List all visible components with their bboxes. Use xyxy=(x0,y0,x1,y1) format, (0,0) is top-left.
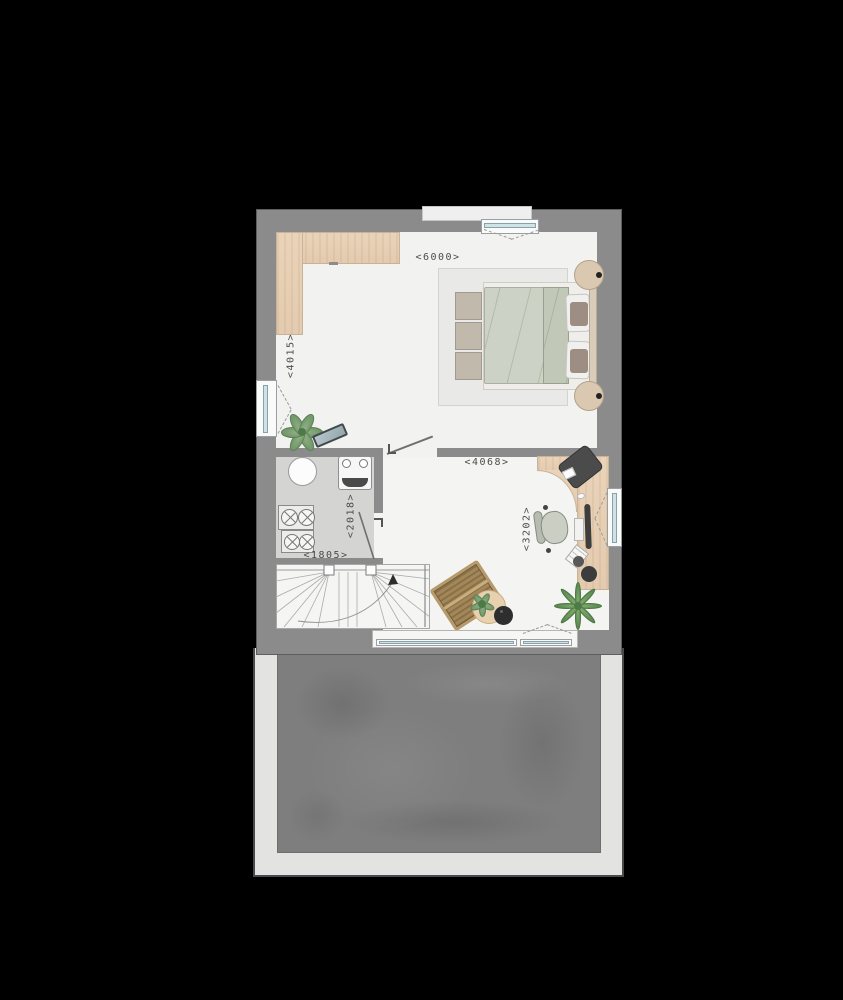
headboard xyxy=(589,280,597,392)
window-glass xyxy=(484,223,536,228)
door-hinge xyxy=(388,444,396,454)
stairs-icon xyxy=(276,563,430,629)
vase-icon xyxy=(494,606,513,625)
boiler-icon xyxy=(288,457,317,486)
bed-bench-icon xyxy=(455,292,482,380)
wardrobe-handle xyxy=(329,262,338,265)
pillow xyxy=(570,349,588,373)
leaf xyxy=(575,582,581,608)
dimension-label-bedroom-depth: <4015> xyxy=(286,318,297,394)
dimension-label-bedroom-width: <6000> xyxy=(400,252,476,263)
bench-cushion xyxy=(455,322,482,350)
window-icon xyxy=(376,639,517,646)
washing-machine-icon xyxy=(278,505,314,530)
lamp-stem xyxy=(596,272,602,278)
window-glass xyxy=(379,641,514,644)
keyboard-icon xyxy=(574,518,584,541)
desk-lamp-icon xyxy=(581,566,597,582)
window-glass xyxy=(263,385,268,433)
dimension-label-study-depth: <3202> xyxy=(522,491,533,567)
plant-icon xyxy=(467,589,497,619)
dryer-symbol xyxy=(299,534,315,550)
knob xyxy=(342,459,351,468)
pillow xyxy=(570,302,588,326)
washer-symbol xyxy=(298,509,315,526)
roof-terrace xyxy=(277,653,601,853)
washer-symbol xyxy=(281,509,298,526)
knob xyxy=(359,459,368,468)
bench-cushion xyxy=(455,352,482,380)
dimension-label-utility-depth: <2018> xyxy=(346,478,357,554)
palm-plant-icon xyxy=(553,581,603,631)
vase-highlight xyxy=(500,610,503,613)
leaf xyxy=(576,603,602,609)
leaf xyxy=(554,603,580,609)
window-icon xyxy=(256,380,277,437)
floor-plan-canvas: <6000> <4015> <4068> <3202> <1805> <2018… xyxy=(0,0,843,1000)
window-glass xyxy=(612,493,617,543)
dryer-symbol xyxy=(284,534,300,550)
leaf xyxy=(479,602,486,617)
window-glass xyxy=(523,641,569,644)
window-icon xyxy=(607,488,622,547)
chair-caster xyxy=(543,505,548,510)
leaf xyxy=(575,604,581,630)
dimension-label-study-width: <4068> xyxy=(449,457,525,468)
lamp-stem xyxy=(596,393,602,399)
chair-caster xyxy=(546,548,551,553)
desk-lamp-icon xyxy=(573,556,584,567)
terrace-door-icon xyxy=(520,639,572,646)
bench-cushion xyxy=(455,292,482,320)
door-hinge xyxy=(374,518,383,527)
